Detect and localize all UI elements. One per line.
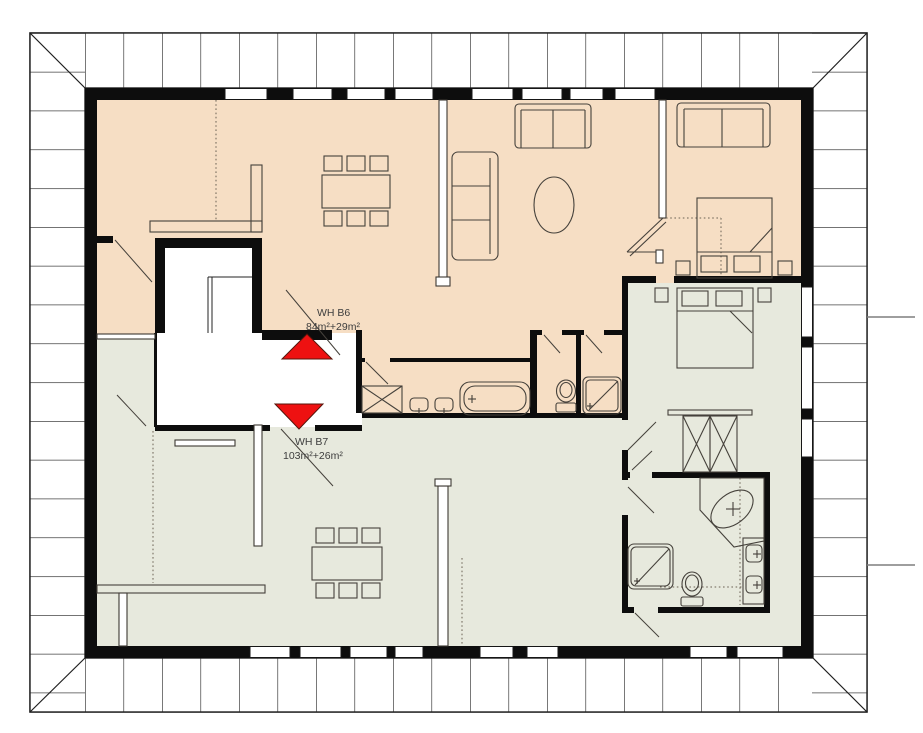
wall-b6-bedroom xyxy=(659,100,666,218)
unit-b6-area-label: 84m²+29m² xyxy=(306,321,360,333)
wall-west xyxy=(85,88,97,658)
floor-plan-canvas: WH B6 84m²+29m² WH B7 103m²+26m² xyxy=(0,0,923,733)
roof-tiles-right xyxy=(812,33,867,712)
stair-landing xyxy=(155,333,362,427)
roof-tiles-top xyxy=(30,33,867,88)
floor-plan-drawing: WH B6 84m²+29m² WH B7 103m²+26m² xyxy=(0,0,923,733)
roof-tiles-bottom xyxy=(30,657,867,712)
unit-b7-area-label: 103m²+26m² xyxy=(283,450,343,462)
unit-b6-label: WH B6 xyxy=(317,307,350,319)
wall-north xyxy=(85,88,813,100)
unit-b7-label: WH B7 xyxy=(295,436,328,448)
roof-tiles-left xyxy=(30,33,85,712)
section-leader-lines xyxy=(867,317,915,565)
